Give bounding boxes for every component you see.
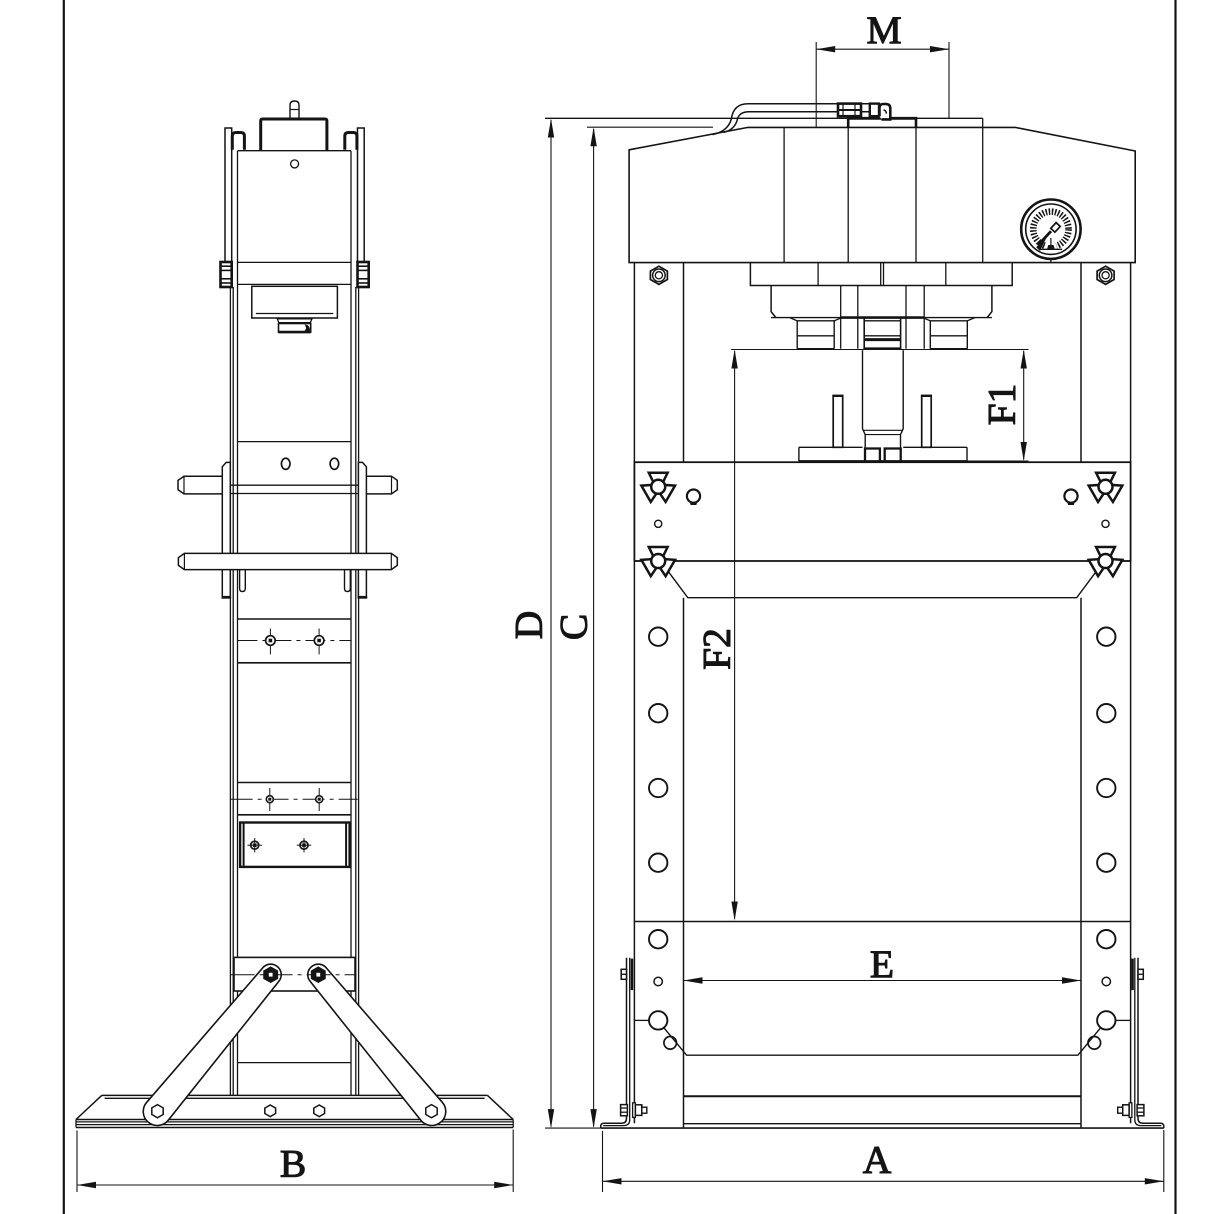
svg-text:F2: F2	[695, 628, 739, 670]
svg-text:D: D	[507, 611, 551, 640]
svg-text:C: C	[552, 614, 596, 640]
svg-text:F1: F1	[980, 384, 1024, 426]
svg-text:M: M	[866, 8, 901, 52]
svg-text:A: A	[863, 1138, 892, 1182]
svg-text:E: E	[870, 942, 894, 986]
svg-text:B: B	[280, 1142, 306, 1186]
